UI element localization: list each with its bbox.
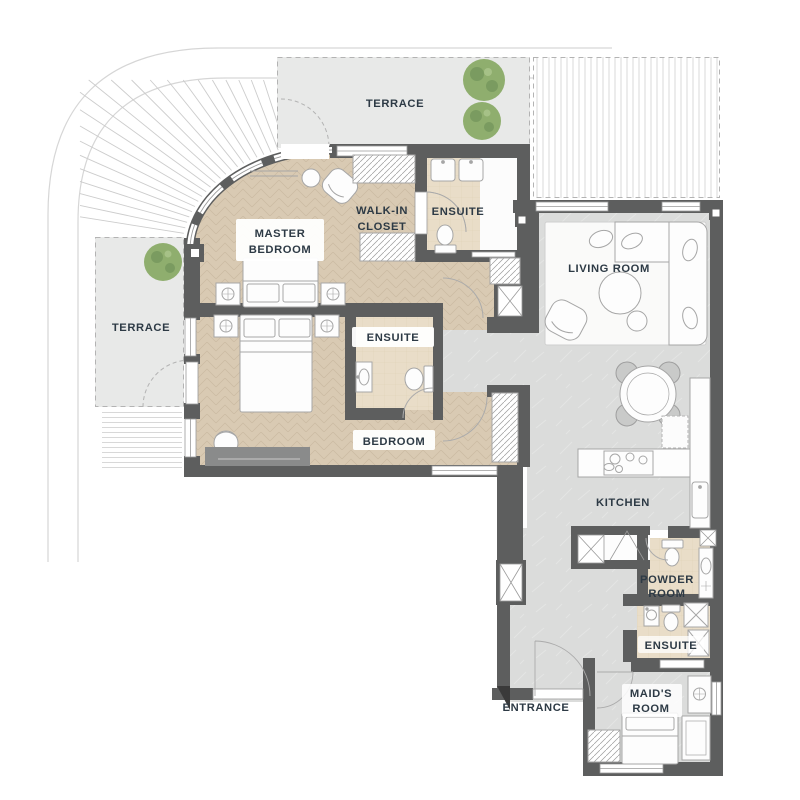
sink bbox=[644, 606, 659, 626]
sink bbox=[459, 159, 483, 181]
entrance-door-opening bbox=[533, 689, 583, 699]
room-label-bedroom: BEDROOM bbox=[363, 436, 426, 448]
sink bbox=[356, 362, 372, 392]
room-label-powder-2: ROOM bbox=[648, 588, 685, 600]
room-label-master-1: MASTER bbox=[255, 228, 306, 240]
master-bed bbox=[243, 258, 318, 307]
toilet bbox=[662, 605, 680, 631]
room-label-living: LIVING ROOM bbox=[568, 263, 650, 275]
nightstand bbox=[216, 283, 240, 305]
wardrobe bbox=[490, 258, 520, 284]
maid-bed bbox=[622, 713, 678, 764]
floor-plan-canvas: TERRACE TERRACE MASTER BEDROOM WALK-IN C… bbox=[0, 0, 800, 800]
coffee-table bbox=[599, 272, 641, 314]
side-table bbox=[627, 311, 647, 331]
room-label-terrace-left: TERRACE bbox=[112, 322, 170, 334]
desk bbox=[688, 676, 711, 713]
room-label-entrance: ENTRANCE bbox=[503, 702, 570, 714]
room-label-powder-1: POWDER bbox=[640, 574, 694, 586]
room-label-walkin-2: CLOSET bbox=[358, 221, 407, 233]
kitchen-sink bbox=[692, 482, 708, 518]
vanity bbox=[699, 548, 713, 598]
room-label-kitchen: KITCHEN bbox=[596, 497, 650, 509]
room-label-maid-1: MAID'S bbox=[630, 688, 672, 700]
wardrobe bbox=[588, 730, 620, 762]
deck-hatch bbox=[102, 412, 182, 470]
floor-plan: TERRACE TERRACE MASTER BEDROOM WALK-IN C… bbox=[0, 0, 800, 800]
sliding-door bbox=[660, 660, 704, 668]
terrace-door-opening bbox=[281, 144, 329, 159]
tv-console bbox=[205, 447, 310, 466]
tree bbox=[463, 59, 505, 101]
dresser bbox=[682, 716, 710, 760]
stove bbox=[604, 451, 653, 475]
wardrobe bbox=[492, 393, 518, 462]
room-label-terrace-top: TERRACE bbox=[366, 98, 424, 110]
room-label-ensuite-low: ENSUITE bbox=[645, 640, 698, 652]
room-label-ensuite-mid: ENSUITE bbox=[367, 332, 420, 344]
room-label-walkin-1: WALK-IN bbox=[356, 205, 408, 217]
tree bbox=[144, 243, 182, 281]
towel-rail bbox=[472, 252, 515, 257]
nightstand bbox=[214, 315, 238, 337]
terrace-door-opening bbox=[186, 362, 198, 404]
appliance-dashed bbox=[662, 416, 688, 448]
tree bbox=[463, 102, 501, 140]
nightstand bbox=[321, 283, 345, 305]
stool bbox=[302, 169, 320, 187]
room-label-ensuite-top: ENSUITE bbox=[432, 206, 485, 218]
ensuite-door-opening bbox=[415, 192, 427, 234]
wardrobe bbox=[360, 233, 415, 261]
wardrobe bbox=[353, 155, 415, 183]
pergola-hatch bbox=[533, 57, 720, 198]
room-label-maid-2: ROOM bbox=[632, 703, 669, 715]
room-label-master-2: BEDROOM bbox=[249, 244, 312, 256]
nightstand bbox=[315, 315, 339, 337]
bed bbox=[240, 315, 312, 412]
sink bbox=[431, 159, 455, 181]
